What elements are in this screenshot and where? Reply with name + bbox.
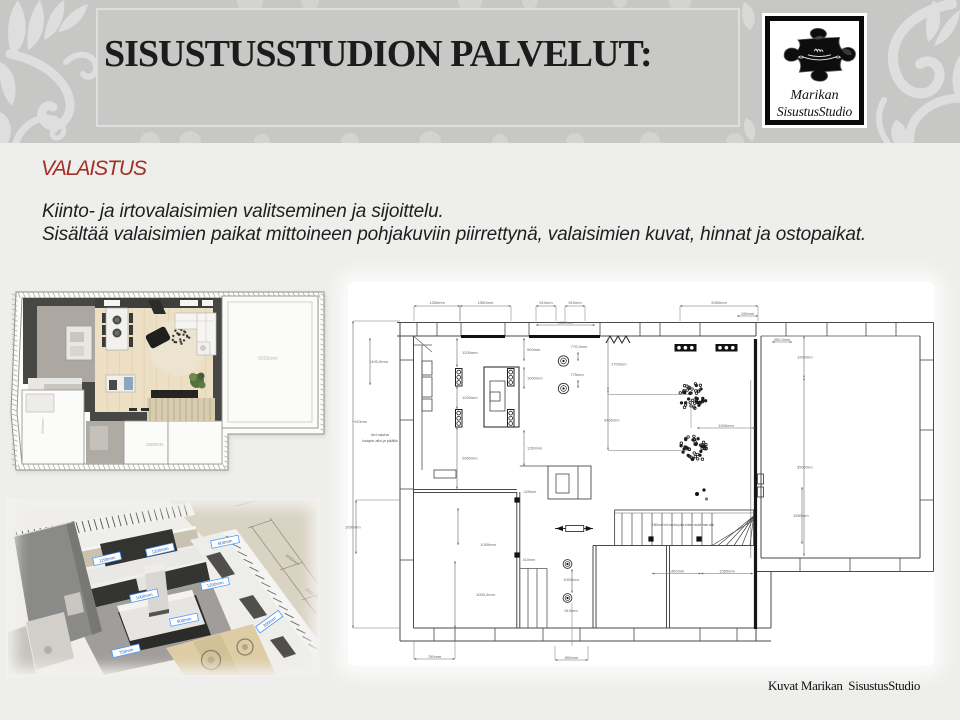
svg-text:~910mm: ~910mm bbox=[352, 420, 367, 424]
svg-text:910mm: 910mm bbox=[564, 608, 578, 613]
svg-text:1200mm: 1200mm bbox=[462, 350, 478, 355]
svg-text:2060mm: 2060mm bbox=[462, 456, 478, 461]
svg-text:1400mm: 1400mm bbox=[669, 569, 685, 574]
svg-text:1700mm: 1700mm bbox=[611, 362, 627, 367]
svg-text:1000,0mm: 1000,0mm bbox=[476, 592, 496, 597]
svg-text:led nauha: led nauha bbox=[371, 432, 389, 437]
svg-text:1050mm: 1050mm bbox=[345, 525, 361, 530]
svg-text:350,0mm: 350,0mm bbox=[774, 337, 791, 342]
svg-text:2900mm: 2900mm bbox=[146, 442, 164, 447]
svg-text:790mm: 790mm bbox=[428, 654, 442, 659]
svg-text:800mm: 800mm bbox=[565, 655, 579, 660]
svg-text:910mm: 910mm bbox=[539, 300, 553, 305]
svg-text:kaapin alla ja päällä: kaapin alla ja päällä bbox=[362, 438, 398, 443]
svg-text:775mm: 775mm bbox=[570, 372, 584, 377]
svg-text:1200mm: 1200mm bbox=[797, 355, 813, 360]
svg-text:1550mm: 1550mm bbox=[478, 300, 494, 305]
svg-text:1000mm: 1000mm bbox=[527, 376, 543, 381]
svg-text:1050mm: 1050mm bbox=[480, 542, 496, 547]
svg-text:3500mm: 3500mm bbox=[797, 465, 813, 470]
svg-text:190mm: 190mm bbox=[741, 311, 755, 316]
svg-text:1400,0mm: 1400,0mm bbox=[369, 359, 389, 364]
svg-text:1000mm: 1000mm bbox=[558, 320, 574, 325]
svg-text:1000mm: 1000mm bbox=[563, 577, 579, 582]
svg-text:6000mm: 6000mm bbox=[258, 356, 277, 362]
svg-text:150mm led nauha joka toisen as: 150mm led nauha joka toisen askelman all… bbox=[652, 523, 714, 527]
svg-text:1200mm: 1200mm bbox=[462, 395, 478, 400]
svg-text:425mm: 425mm bbox=[524, 490, 537, 494]
svg-text:2050mm: 2050mm bbox=[711, 300, 727, 305]
svg-text:2900mm: 2900mm bbox=[40, 418, 45, 434]
svg-text:410mm: 410mm bbox=[523, 558, 536, 562]
svg-text:3460mm: 3460mm bbox=[604, 418, 620, 423]
svg-text:1550mm: 1550mm bbox=[793, 513, 809, 518]
svg-text:1150mm: 1150mm bbox=[527, 446, 543, 451]
svg-text:1550mm: 1550mm bbox=[719, 569, 735, 574]
svg-text:910mm: 910mm bbox=[568, 300, 582, 305]
svg-text:1350mm: 1350mm bbox=[429, 300, 445, 305]
svg-text:1000mm: 1000mm bbox=[718, 423, 734, 428]
svg-text:900mm: 900mm bbox=[527, 347, 541, 352]
svg-text:770,0mm: 770,0mm bbox=[571, 344, 588, 349]
